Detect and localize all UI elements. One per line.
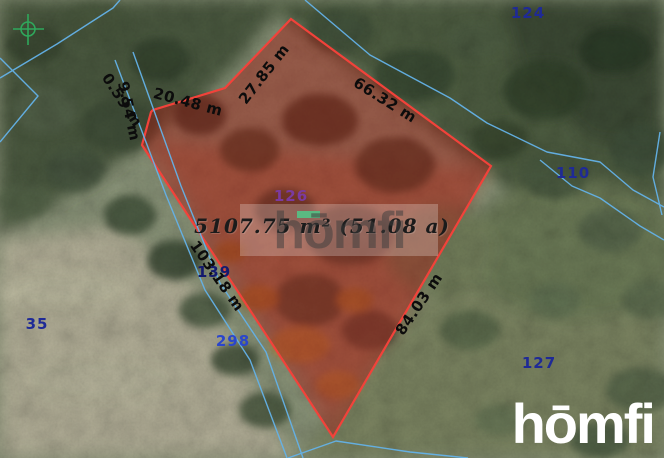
watermark-text: hōmfi: [273, 201, 405, 261]
map-canvas: 124 126 110 139 35 298 127 27.85 m 66.32…: [0, 0, 664, 458]
homfi-logo: hōmfi: [512, 391, 654, 456]
